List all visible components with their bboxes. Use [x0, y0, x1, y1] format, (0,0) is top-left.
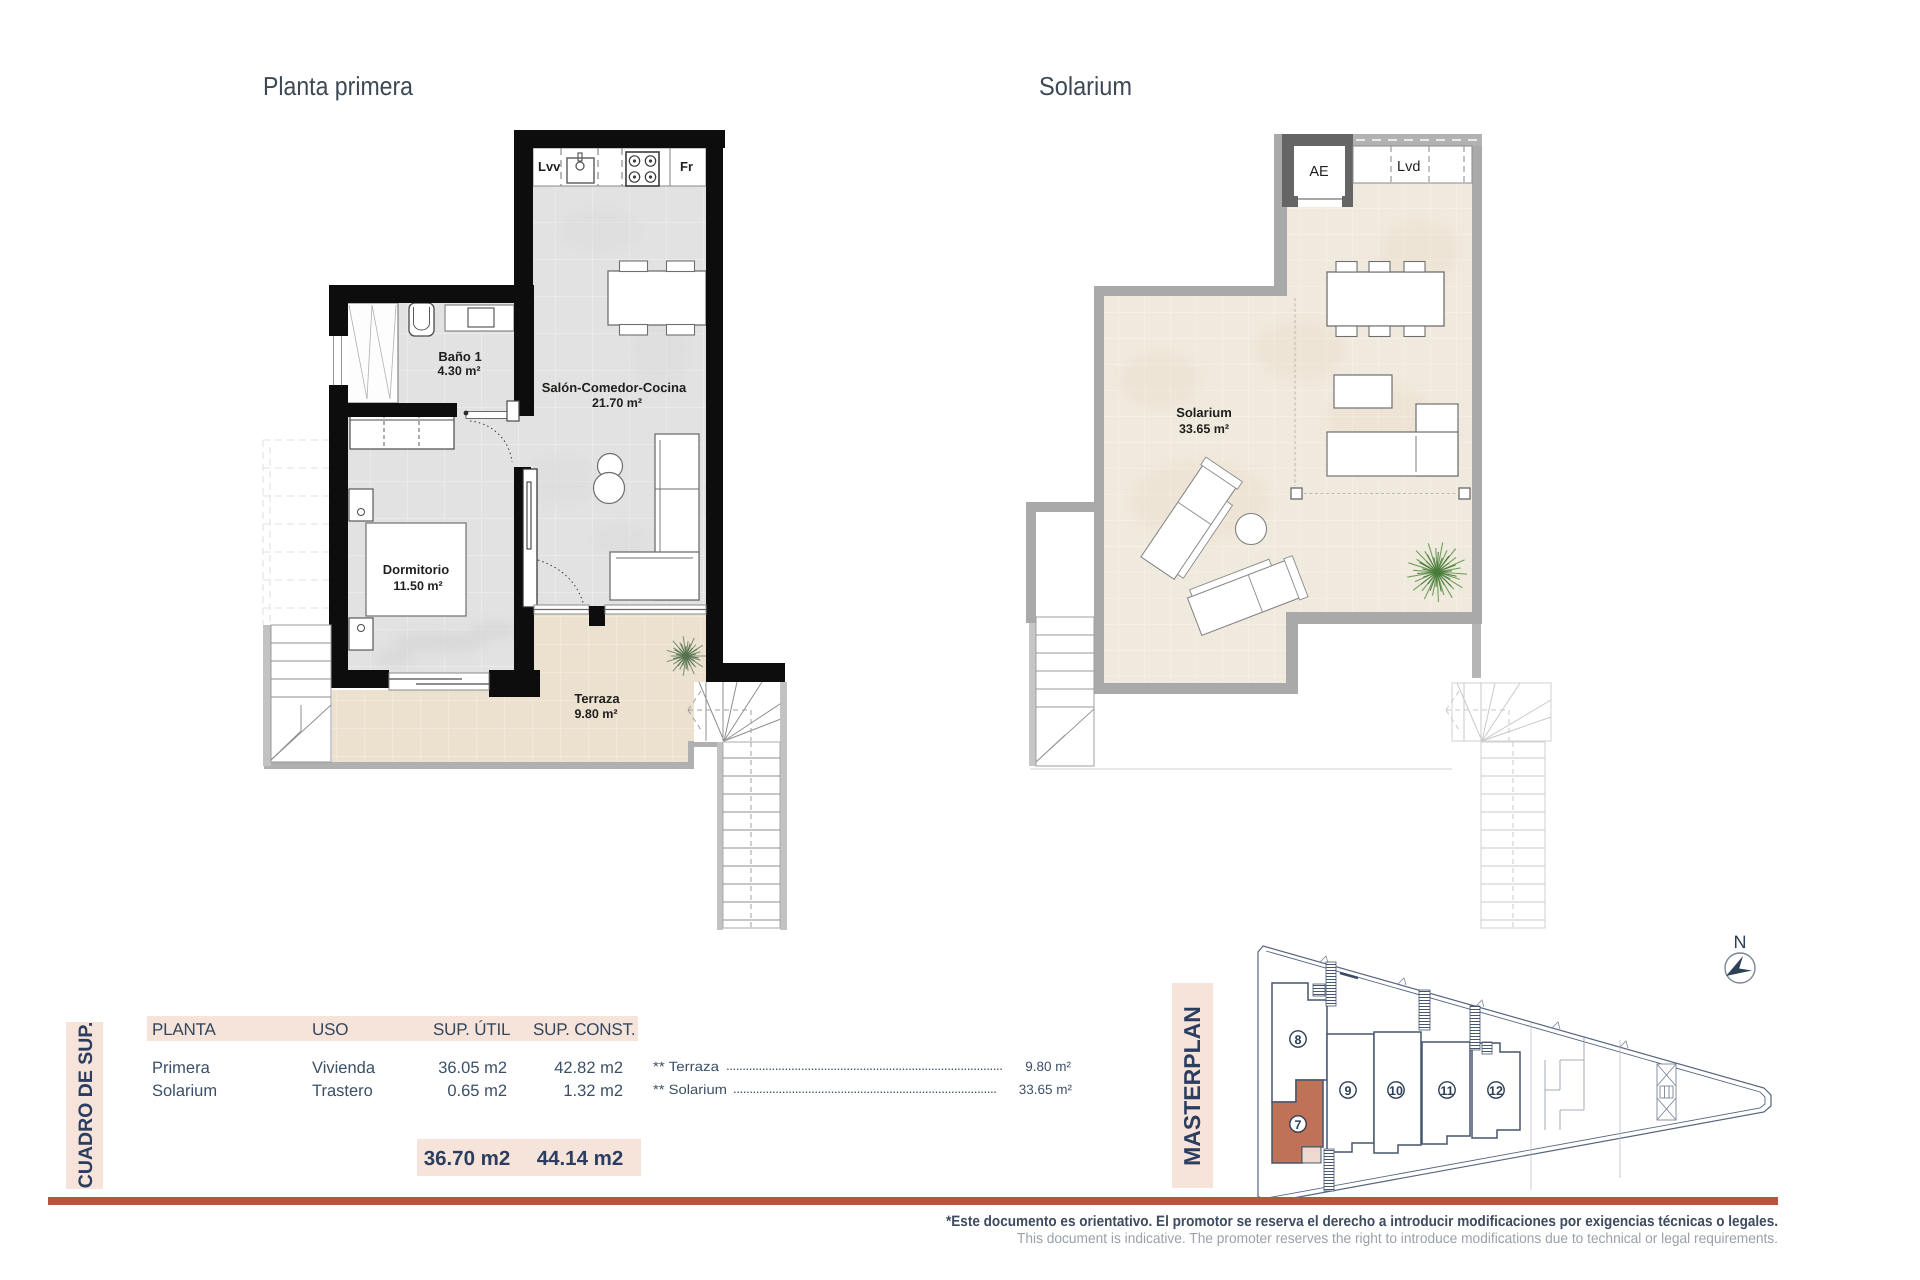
svg-text:Dormitorio: Dormitorio: [383, 562, 450, 577]
svg-text:12: 12: [1489, 1084, 1503, 1098]
svg-text:USO: USO: [312, 1020, 348, 1039]
svg-text:36.70 m2: 36.70 m2: [424, 1147, 511, 1170]
svg-text:MASTERPLAN: MASTERPLAN: [1179, 1006, 1205, 1166]
svg-text:0.65 m2: 0.65 m2: [447, 1082, 507, 1100]
svg-text:33.65 m²: 33.65 m²: [1019, 1082, 1073, 1097]
svg-text:9: 9: [1345, 1084, 1352, 1098]
svg-text:4.30 m²: 4.30 m²: [437, 364, 480, 378]
svg-text:Planta primera: Planta primera: [263, 71, 413, 101]
svg-text:SUP. ÚTIL: SUP. ÚTIL: [433, 1020, 510, 1039]
svg-text:Lvv: Lvv: [538, 159, 561, 174]
svg-text:11: 11: [1440, 1084, 1453, 1098]
svg-text:44.14 m2: 44.14 m2: [537, 1147, 624, 1170]
svg-text:Trastero: Trastero: [312, 1082, 373, 1100]
svg-text:Fr: Fr: [680, 159, 693, 174]
svg-text:9.80 m²: 9.80 m²: [1025, 1059, 1071, 1074]
svg-text:PLANTA: PLANTA: [152, 1020, 217, 1039]
svg-text:..............................: ........................................…: [733, 1081, 997, 1096]
svg-text:..............................: ........................................…: [726, 1058, 1003, 1073]
svg-text:Primera: Primera: [152, 1059, 211, 1077]
svg-text:N: N: [1734, 932, 1747, 952]
svg-text:CUADRO DE SUP.: CUADRO DE SUP.: [75, 1022, 97, 1189]
svg-text:AE: AE: [1309, 164, 1329, 180]
svg-text:42.82 m2: 42.82 m2: [554, 1059, 623, 1077]
svg-text:SUP. CONST.: SUP. CONST.: [533, 1020, 635, 1039]
svg-text:Vivienda: Vivienda: [312, 1059, 376, 1077]
svg-text:** Terraza: ** Terraza: [653, 1059, 720, 1074]
svg-text:21.70 m²: 21.70 m²: [592, 396, 642, 410]
svg-text:10: 10: [1389, 1084, 1403, 1098]
svg-text:7: 7: [1295, 1118, 1302, 1132]
svg-text:Lvd: Lvd: [1397, 159, 1420, 175]
svg-text:1.32 m2: 1.32 m2: [563, 1082, 623, 1100]
svg-text:Baño 1: Baño 1: [438, 349, 481, 364]
svg-text:Solarium: Solarium: [1039, 71, 1132, 101]
svg-text:This document is indicative. T: This document is indicative. The promote…: [1017, 1231, 1778, 1247]
svg-text:36.05 m2: 36.05 m2: [438, 1059, 507, 1077]
svg-text:Terraza: Terraza: [574, 691, 620, 706]
svg-text:8: 8: [1295, 1033, 1302, 1047]
svg-text:*Este documento es orientativo: *Este documento es orientativo. El promo…: [946, 1213, 1778, 1230]
svg-text:Solarium: Solarium: [1176, 405, 1232, 420]
svg-text:** Solarium: ** Solarium: [653, 1082, 727, 1097]
svg-text:9.80 m²: 9.80 m²: [574, 707, 617, 721]
svg-text:33.65 m²: 33.65 m²: [1179, 422, 1229, 436]
svg-text:Solarium: Solarium: [152, 1082, 217, 1100]
svg-text:Salón-Comedor-Cocina: Salón-Comedor-Cocina: [542, 380, 687, 395]
svg-text:11.50 m²: 11.50 m²: [393, 579, 442, 593]
